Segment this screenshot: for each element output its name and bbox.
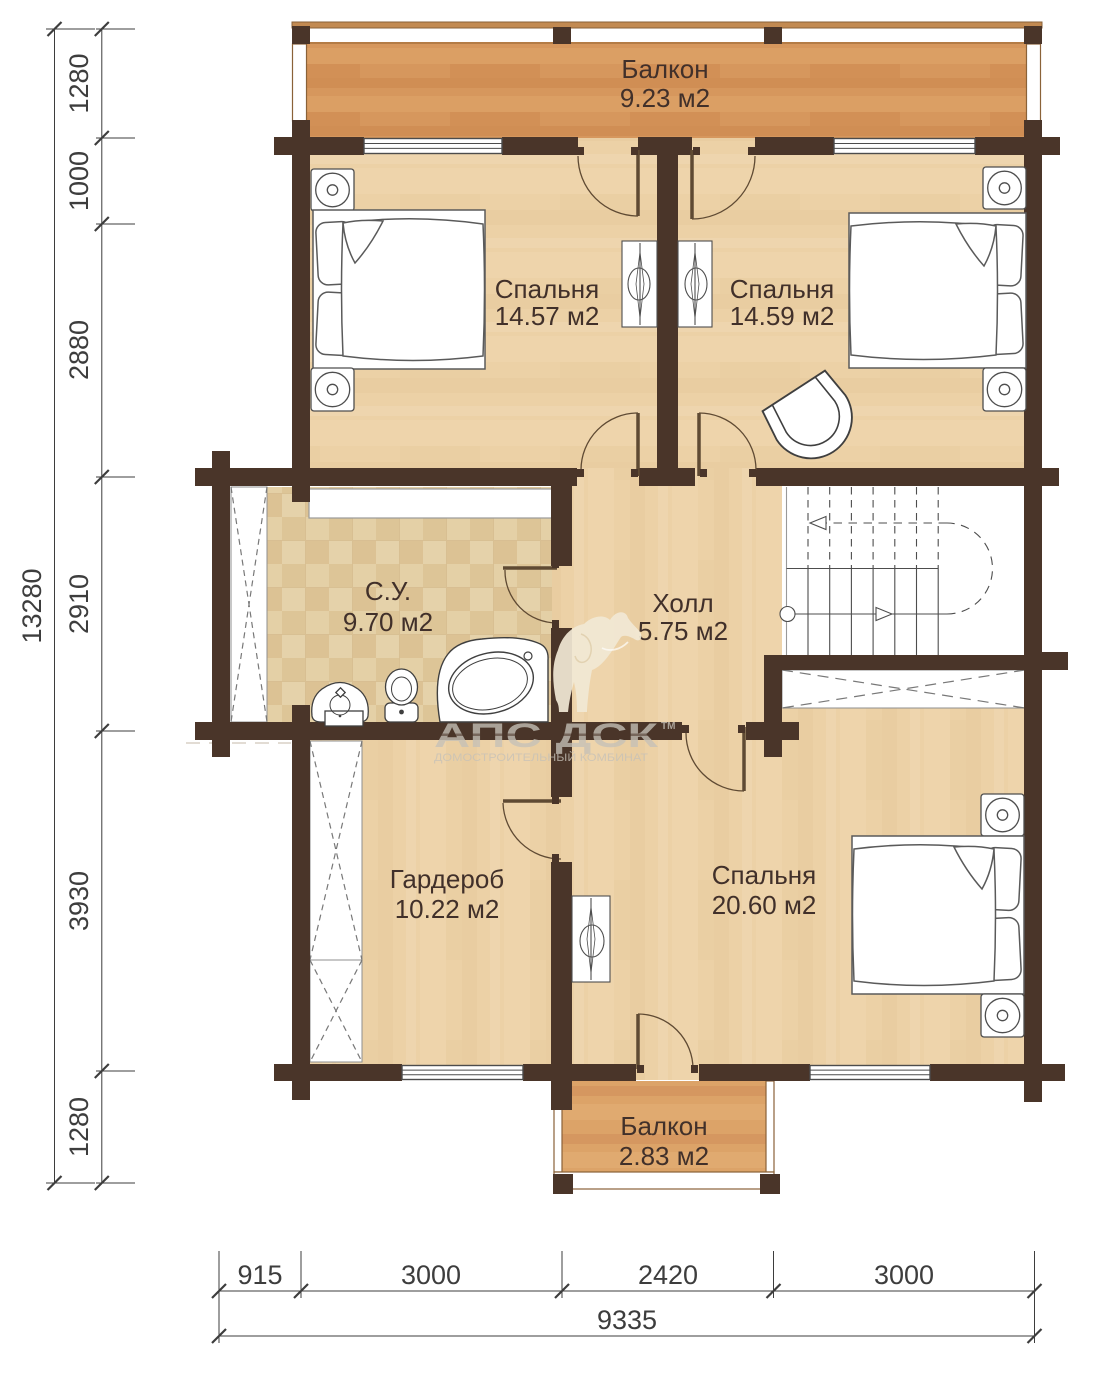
- svg-text:Спальня: Спальня: [495, 274, 599, 304]
- svg-text:2880: 2880: [64, 320, 94, 380]
- svg-text:9.23 м2: 9.23 м2: [620, 83, 710, 113]
- svg-text:3000: 3000: [874, 1260, 934, 1290]
- svg-text:ТМ: ТМ: [661, 721, 675, 732]
- svg-text:13280: 13280: [17, 568, 47, 643]
- svg-text:2910: 2910: [64, 574, 94, 634]
- svg-text:9335: 9335: [597, 1305, 657, 1335]
- svg-text:Гардероб: Гардероб: [390, 864, 504, 894]
- svg-text:10.22 м2: 10.22 м2: [395, 894, 500, 924]
- svg-text:20.60 м2: 20.60 м2: [712, 890, 817, 920]
- svg-text:1000: 1000: [64, 151, 94, 211]
- svg-text:5.75 м2: 5.75 м2: [638, 616, 728, 646]
- svg-text:9.70 м2: 9.70 м2: [343, 607, 433, 637]
- svg-text:3930: 3930: [64, 871, 94, 931]
- svg-text:Балкон: Балкон: [621, 54, 708, 84]
- svg-text:2.83 м2: 2.83 м2: [619, 1141, 709, 1171]
- svg-text:1280: 1280: [64, 53, 94, 113]
- svg-text:Балкон: Балкон: [620, 1111, 707, 1141]
- svg-text:Спальня: Спальня: [712, 860, 816, 890]
- svg-text:3000: 3000: [401, 1260, 461, 1290]
- svg-text:Спальня: Спальня: [730, 274, 834, 304]
- svg-text:14.59 м2: 14.59 м2: [730, 301, 835, 331]
- svg-text:Холл: Холл: [652, 588, 713, 618]
- svg-text:С.У.: С.У.: [365, 576, 411, 606]
- svg-text:ДОМОСТРОИТЕЛЬНЫЙ КОМБИНАТ: ДОМОСТРОИТЕЛЬНЫЙ КОМБИНАТ: [434, 751, 648, 764]
- svg-text:2420: 2420: [638, 1260, 698, 1290]
- svg-text:14.57 м2: 14.57 м2: [495, 301, 600, 331]
- svg-text:1280: 1280: [64, 1097, 94, 1157]
- svg-text:915: 915: [237, 1260, 282, 1290]
